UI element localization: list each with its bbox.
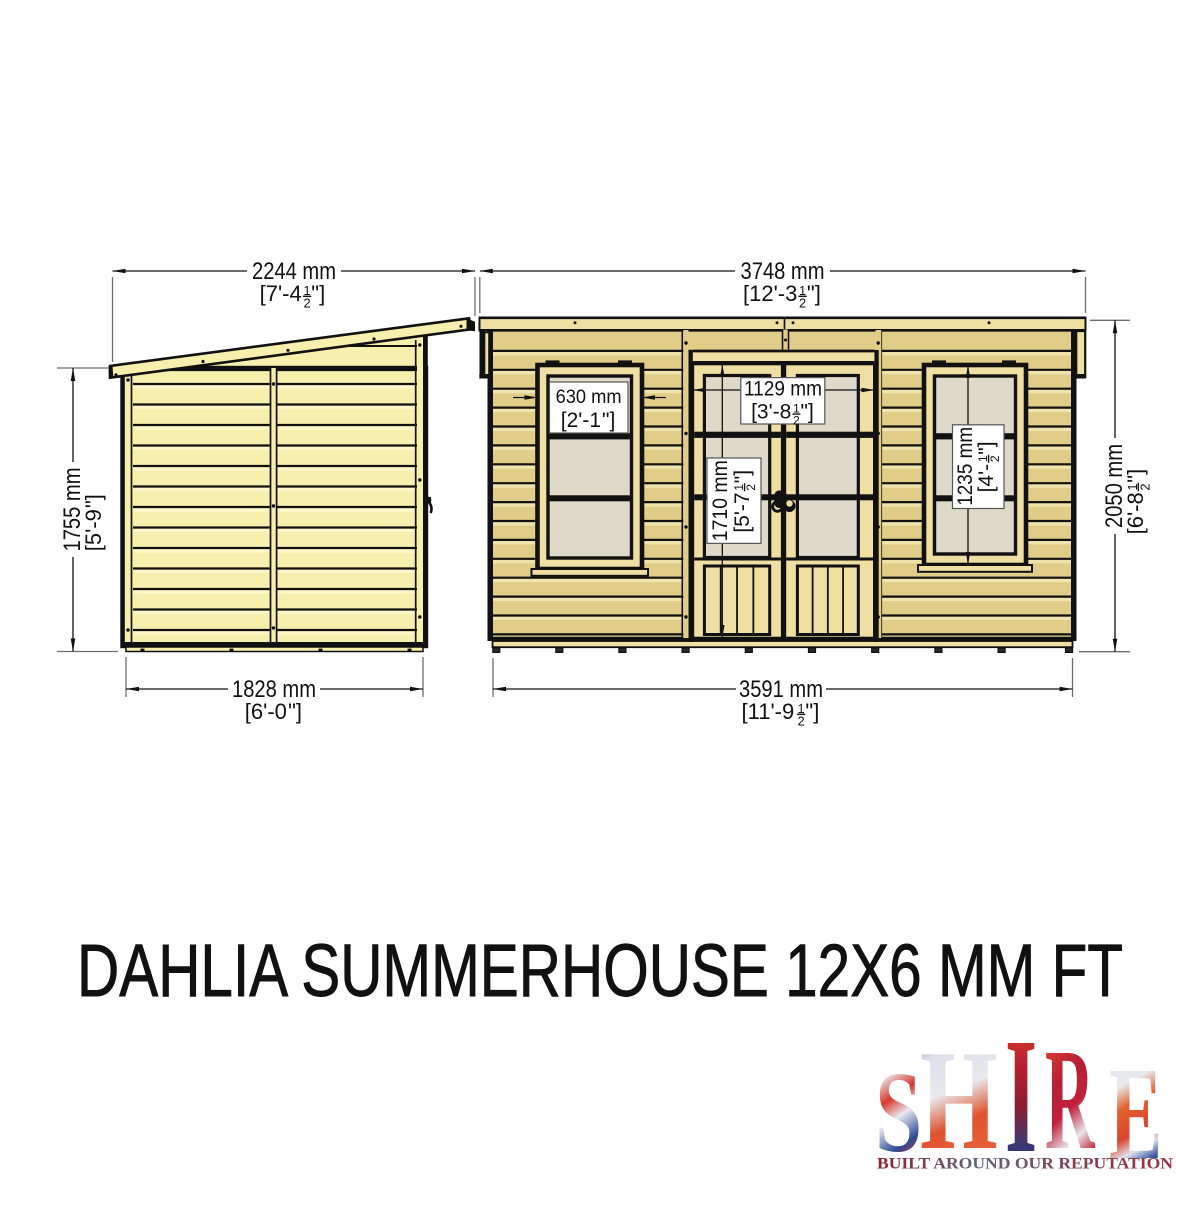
svg-text:1235 mm: 1235 mm xyxy=(954,427,977,506)
svg-text:[2'-1: [2'-1 xyxy=(561,409,601,432)
svg-text:2: 2 xyxy=(799,295,806,310)
svg-text:[5'-9: [5'-9 xyxy=(81,509,106,551)
svg-text:"]: "] xyxy=(805,699,819,724)
svg-text:2: 2 xyxy=(793,414,800,428)
svg-text:"]: "] xyxy=(288,699,302,724)
svg-text:DAHLIA SUMMERHOUSE 12X6 MM FT: DAHLIA SUMMERHOUSE 12X6 MM FT xyxy=(77,929,1123,1012)
svg-text:[12'-3: [12'-3 xyxy=(743,281,797,306)
svg-text:[3'-8: [3'-8 xyxy=(751,401,791,424)
svg-text:"]: "] xyxy=(1123,469,1148,483)
svg-text:BUILT AROUND OUR REPUTATION: BUILT AROUND OUR REPUTATION xyxy=(877,1156,1173,1173)
svg-text:[4'-: [4'- xyxy=(975,464,998,493)
svg-text:"]: "] xyxy=(81,494,106,508)
svg-text:"]: "] xyxy=(807,281,821,306)
svg-text:"]: "] xyxy=(975,441,998,454)
svg-text:630 mm: 630 mm xyxy=(556,386,622,408)
svg-text:"]: "] xyxy=(311,281,325,306)
svg-text:"]: "] xyxy=(602,409,615,432)
svg-text:2: 2 xyxy=(744,484,758,491)
svg-text:1129 mm: 1129 mm xyxy=(744,378,822,401)
svg-text:[7'-4: [7'-4 xyxy=(260,281,302,306)
svg-text:2: 2 xyxy=(988,455,1002,462)
svg-text:2: 2 xyxy=(304,295,311,310)
svg-text:[6'-8: [6'-8 xyxy=(1123,492,1148,534)
svg-text:[5'-7: [5'-7 xyxy=(731,492,754,532)
svg-text:1710 mm: 1710 mm xyxy=(709,460,732,541)
svg-text:2: 2 xyxy=(1137,483,1152,490)
svg-text:2: 2 xyxy=(798,713,805,728)
svg-text:"]: "] xyxy=(731,470,754,483)
svg-text:"]: "] xyxy=(801,401,814,424)
svg-text:[11'-9: [11'-9 xyxy=(742,699,795,724)
svg-text:[6'-0: [6'-0 xyxy=(245,699,287,724)
